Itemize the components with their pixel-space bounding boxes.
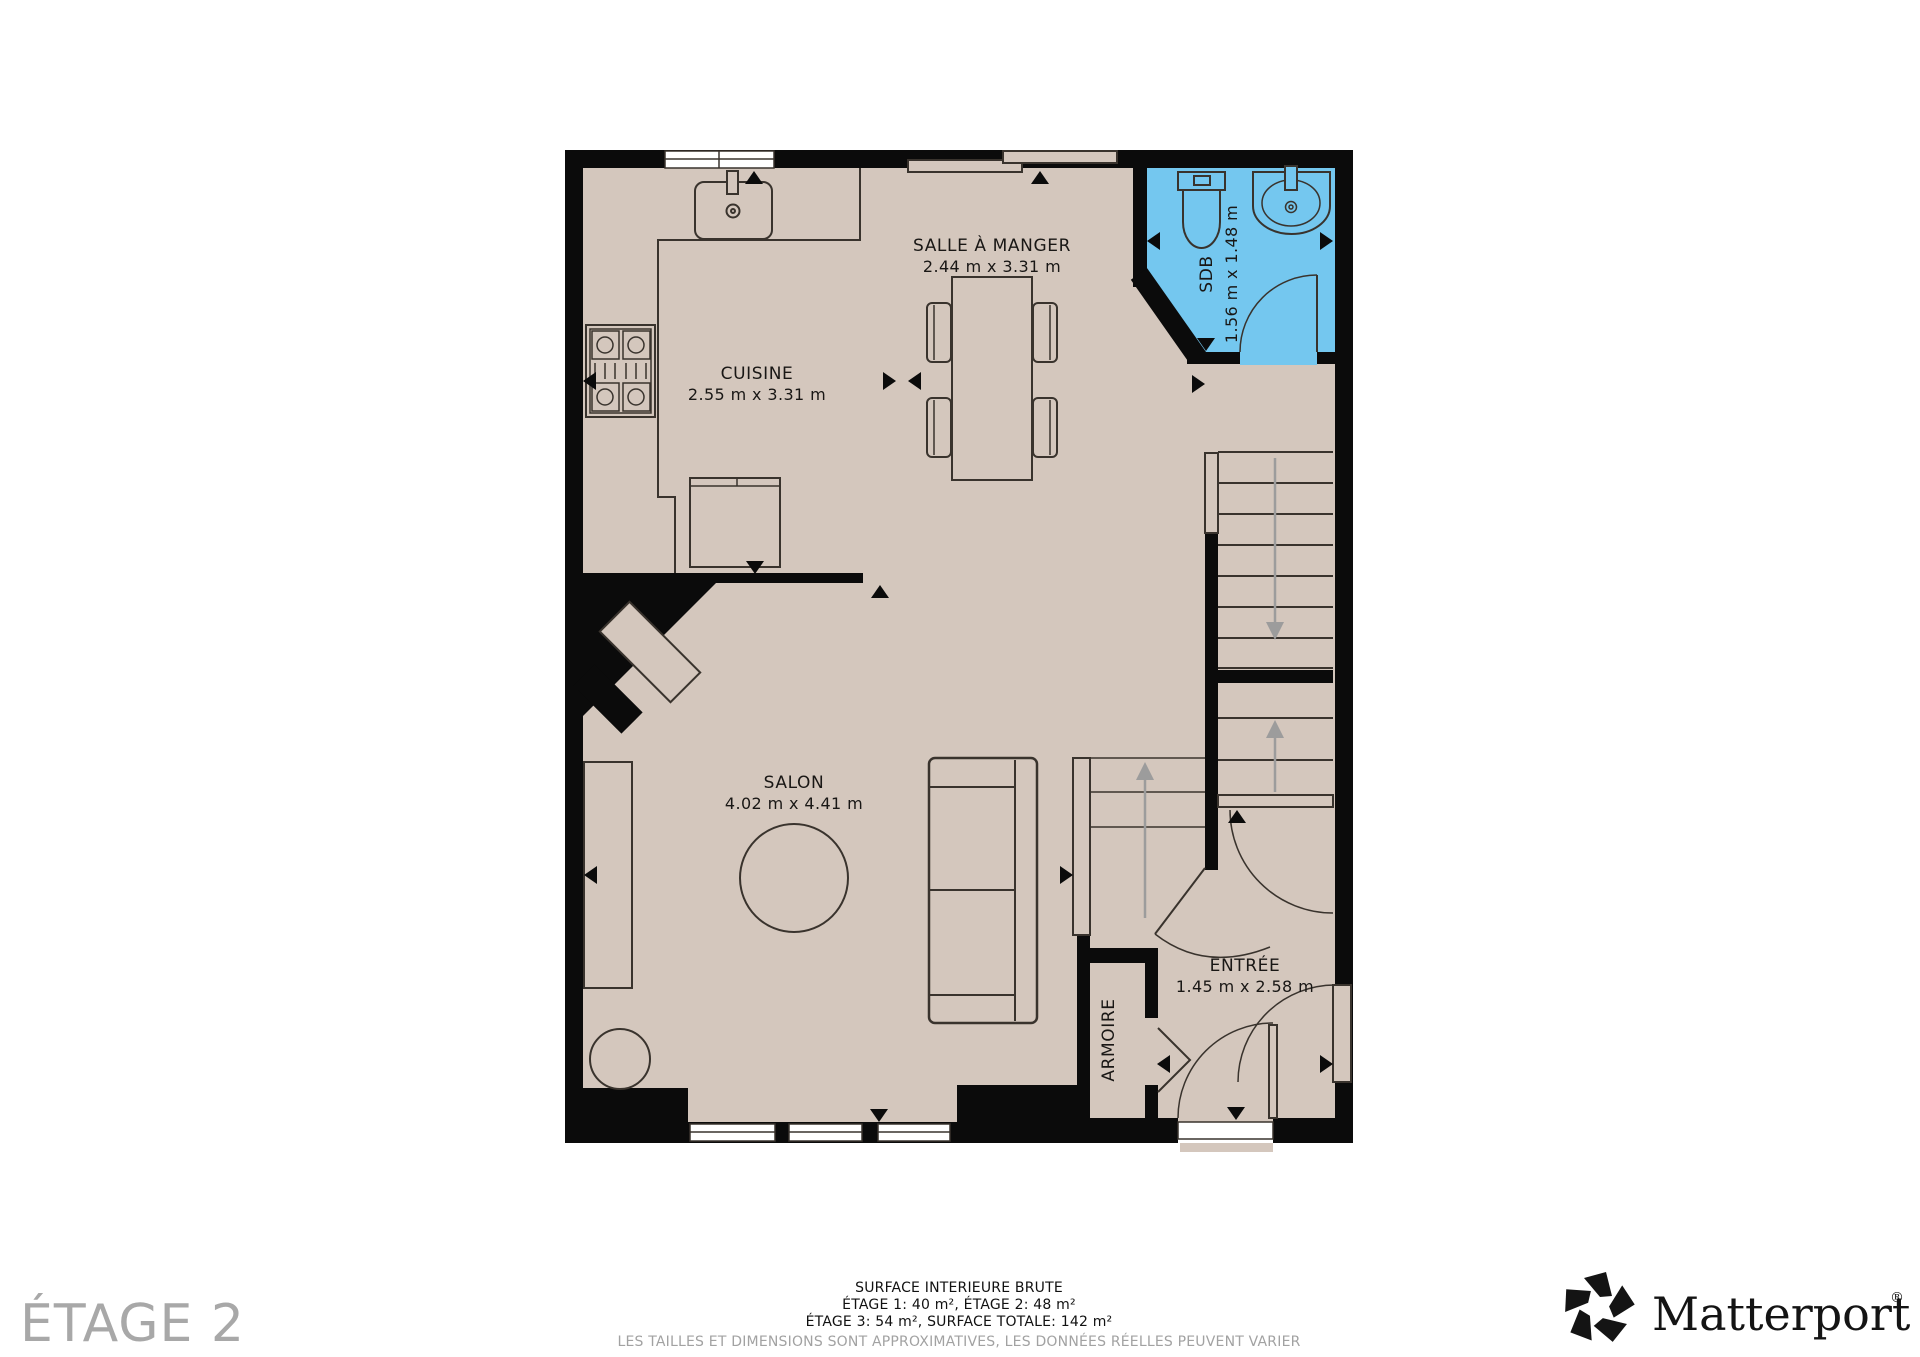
footer-disclaimer: LES TAILLES ET DIMENSIONS SONT APPROXIMA… xyxy=(617,1333,1300,1350)
kitchen-sink-faucet xyxy=(727,171,738,194)
chair xyxy=(927,303,951,362)
window-sliding-b xyxy=(1003,151,1117,163)
wall-armoire-top xyxy=(1077,948,1158,963)
wall-entree-bottom-a xyxy=(1077,1118,1178,1143)
entry-doormat xyxy=(1180,1143,1273,1152)
floor-label: ÉTAGE 2 xyxy=(20,1293,245,1354)
entry-door-threshold xyxy=(1178,1122,1273,1139)
chair xyxy=(927,398,951,457)
label-entree: ENTRÉE xyxy=(1210,954,1281,976)
wall-stairs-left-lower xyxy=(1205,683,1218,870)
wall-bottom-right-chunk xyxy=(957,1085,1090,1143)
wall-armoire-right-b xyxy=(1145,1085,1158,1118)
dims-sdb: 1.56 m x 1.48 m xyxy=(1222,205,1241,343)
wall-kitchen-salon xyxy=(583,573,863,583)
closet-half-wall xyxy=(1073,758,1090,935)
wall-sdb-bottom-b xyxy=(1317,352,1335,364)
stairs-half-wall xyxy=(1205,453,1218,533)
floor-plan-canvas: SALLE À MANGER 2.44 m x 3.31 m CUISINE 2… xyxy=(0,0,1920,1357)
label-armoire: ARMOIRE xyxy=(1099,998,1119,1081)
dims-salon: 4.02 m x 4.41 m xyxy=(725,794,863,813)
footer: SURFACE INTERIEURE BRUTE ÉTAGE 1: 40 m²,… xyxy=(20,1280,1301,1354)
stove xyxy=(586,325,655,417)
toilet-bowl xyxy=(1183,190,1220,248)
wall-left xyxy=(565,150,583,1143)
label-cuisine: CUISINE xyxy=(721,364,794,384)
sdb-door-threshold xyxy=(1240,352,1317,365)
sdb-sink-faucet xyxy=(1285,166,1297,190)
wall-entree-bottom-b xyxy=(1273,1118,1353,1143)
dims-salle-a-manger: 2.44 m x 3.31 m xyxy=(923,257,1061,276)
front-door-leaf xyxy=(1269,1025,1277,1118)
label-sdb: SDB xyxy=(1197,255,1217,292)
wall-sdb-left xyxy=(1133,150,1147,287)
stove-body xyxy=(586,325,655,417)
matterport-pinwheel-icon xyxy=(1559,1272,1636,1345)
chair xyxy=(1033,398,1057,457)
wall-bottom-left-chunk xyxy=(565,1088,688,1143)
side-door-leaf xyxy=(1333,985,1351,1082)
footer-surface-title: SURFACE INTERIEURE BRUTE xyxy=(855,1280,1063,1296)
island-body xyxy=(690,478,780,567)
footer-surface-line2: ÉTAGE 1: 40 m², ÉTAGE 2: 48 m² xyxy=(842,1296,1076,1313)
wall-armoire-right-a xyxy=(1145,963,1158,1018)
wall-sdb-bottom-a xyxy=(1187,352,1240,364)
dining-table xyxy=(952,277,1032,480)
wall-stairs-separator xyxy=(1205,670,1333,683)
brand-registered-mark: ® xyxy=(1890,1290,1904,1306)
stairs-landing-threshold xyxy=(1218,795,1333,807)
dims-entree: 1.45 m x 2.58 m xyxy=(1176,977,1314,996)
brand: Matterport ® xyxy=(1559,1272,1910,1345)
label-salle-a-manger: SALLE À MANGER xyxy=(913,234,1071,256)
dims-cuisine: 2.55 m x 3.31 m xyxy=(688,385,826,404)
label-salon: SALON xyxy=(764,773,825,793)
toilet-flush-button xyxy=(1194,176,1210,185)
sofa xyxy=(929,758,1037,1023)
footer-surface-line3: ÉTAGE 3: 54 m², SURFACE TOTALE: 142 m² xyxy=(806,1313,1113,1330)
chair xyxy=(1033,303,1057,362)
brand-name: Matterport xyxy=(1652,1287,1911,1341)
kitchen-island xyxy=(690,478,780,567)
wall-stairs-left-upper xyxy=(1205,533,1218,670)
